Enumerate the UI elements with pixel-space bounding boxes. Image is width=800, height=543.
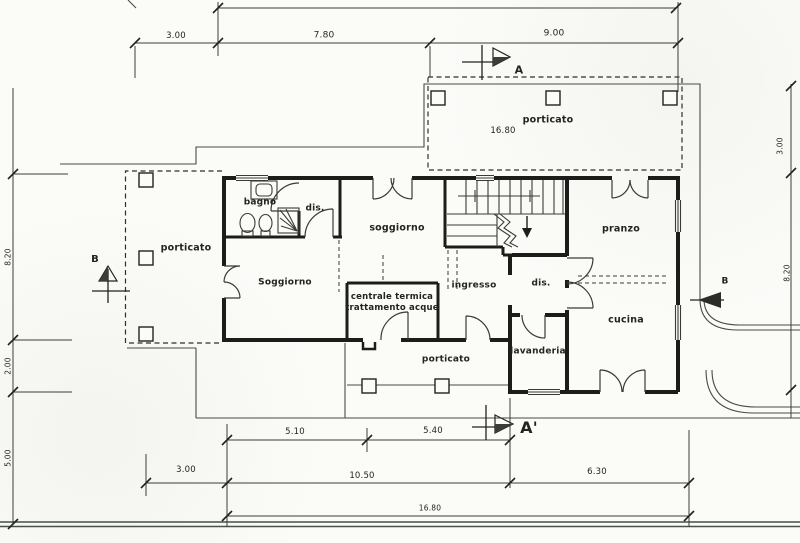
- dim-bottom-540: 5.40: [423, 427, 443, 436]
- room-label-soggiorno-upper: soggiorno: [369, 223, 424, 233]
- floor-plan-sheet: 3.00 7.80 9.00 A A' B B porticato 16.80 …: [0, 0, 800, 543]
- room-label-centrale-termica-2: trattamento acque: [345, 304, 438, 313]
- room-label-pranzo: pranzo: [602, 224, 640, 234]
- dim-right-820: 8.20: [783, 264, 791, 282]
- dim-top-1: 3.00: [166, 32, 186, 41]
- room-label-bagno: bagno: [244, 199, 277, 208]
- section-marker-b-right-icon: [690, 292, 724, 308]
- room-label-centrale-termica-1: centrale termica: [351, 293, 433, 302]
- section-marker-b-left-icon: [92, 266, 130, 303]
- stairs-direction-arrow-icon: [522, 216, 532, 238]
- room-label-lavanderia: lavanderia: [510, 348, 566, 357]
- room-label-dis-1: dis.: [305, 205, 324, 214]
- section-label-b-right: B: [721, 278, 728, 287]
- dim-bottom-1680: 16.80: [419, 504, 441, 512]
- room-label-porticato-south: porticato: [422, 356, 470, 365]
- dim-bottom-510: 5.10: [285, 428, 305, 437]
- dim-bottom-300: 3.00: [176, 466, 196, 475]
- road-lines: [0, 522, 800, 527]
- section-marker-a-prime-icon: [472, 405, 513, 440]
- room-label-soggiorno-lower: Soggiorno: [258, 279, 312, 288]
- room-label-porticato-west: porticato: [161, 243, 212, 253]
- dim-top-3: 9.00: [544, 30, 565, 39]
- toilet-icon: [240, 214, 255, 233]
- dim-left-500: 5.00: [4, 449, 12, 467]
- dim-porticato-width: 16.80: [490, 127, 515, 136]
- floor-plan-drawing: [0, 0, 800, 543]
- bidet-icon: [259, 215, 272, 232]
- section-label-a-prime: A': [520, 420, 538, 436]
- section-marker-a-icon: [462, 45, 510, 80]
- section-label-b-left: B: [91, 255, 99, 265]
- section-label-a: A: [515, 65, 524, 76]
- dim-right-300: 3.00: [776, 137, 784, 155]
- room-label-porticato-top: porticato: [523, 115, 574, 125]
- porticato-pillars: [139, 91, 677, 393]
- dim-left-820: 8.20: [4, 248, 12, 266]
- dim-left-200: 2.00: [4, 357, 12, 375]
- room-label-ingresso: ingresso: [452, 282, 497, 291]
- dim-top-2: 7.80: [314, 32, 335, 41]
- room-label-cucina: cucina: [608, 315, 644, 325]
- dim-bottom-630: 6.30: [587, 468, 607, 477]
- dim-bottom-1050: 10.50: [349, 472, 374, 481]
- dimension-lines: [13, 2, 791, 527]
- bathroom-fixtures: [240, 181, 299, 236]
- room-label-dis-2: dis.: [531, 280, 550, 289]
- stairs: [447, 180, 565, 247]
